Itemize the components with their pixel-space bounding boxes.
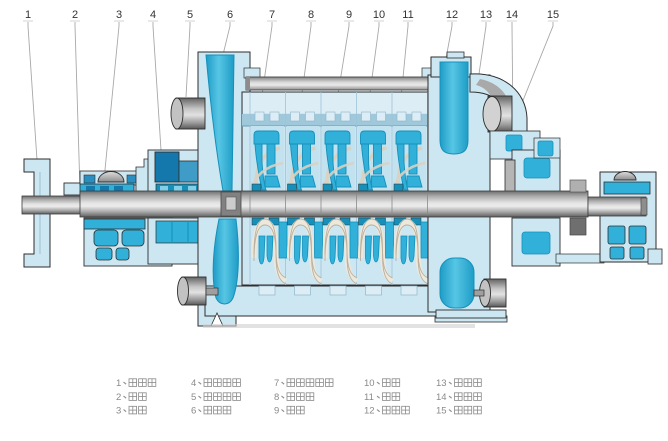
svg-text:4: 4 [191, 378, 196, 389]
svg-text:13: 13 [480, 9, 492, 21]
svg-text:5: 5 [187, 9, 193, 21]
svg-text:1: 1 [116, 378, 121, 389]
svg-text:4: 4 [150, 9, 156, 21]
svg-text:11: 11 [364, 392, 374, 403]
svg-text:3: 3 [116, 9, 122, 21]
svg-text:15: 15 [436, 406, 447, 417]
svg-text:12: 12 [446, 9, 458, 21]
svg-text:15: 15 [547, 9, 559, 21]
svg-text:9: 9 [346, 9, 352, 21]
svg-text:6: 6 [227, 9, 233, 21]
svg-text:13: 13 [436, 378, 447, 389]
svg-text:7: 7 [269, 9, 275, 21]
svg-text:14: 14 [506, 9, 518, 21]
svg-text:10: 10 [373, 9, 385, 21]
svg-text:14: 14 [436, 392, 447, 403]
svg-text:6: 6 [191, 406, 196, 417]
svg-text:10: 10 [364, 378, 375, 389]
svg-text:11: 11 [402, 9, 413, 21]
svg-text:2: 2 [116, 392, 121, 403]
svg-text:8: 8 [274, 392, 279, 403]
svg-text:1: 1 [25, 9, 31, 21]
svg-text:12: 12 [364, 406, 375, 417]
svg-text:3: 3 [116, 406, 121, 417]
svg-text:8: 8 [308, 9, 314, 21]
svg-text:9: 9 [274, 406, 279, 417]
svg-text:7: 7 [274, 378, 279, 389]
svg-text:2: 2 [72, 9, 78, 21]
svg-text:5: 5 [191, 392, 196, 403]
